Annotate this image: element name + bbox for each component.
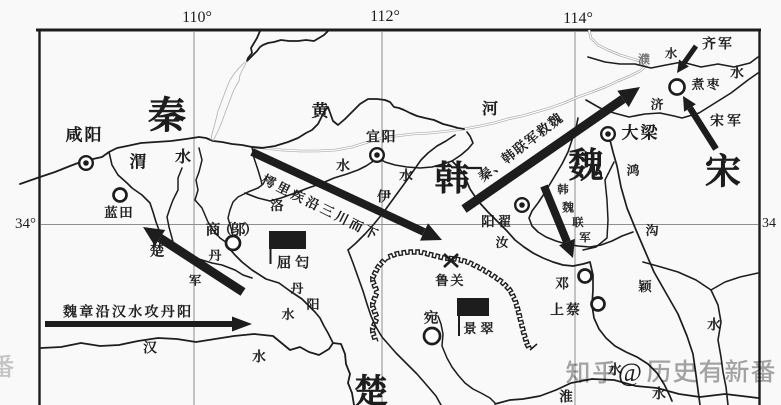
- svg-text:114°: 114°: [563, 10, 593, 27]
- svg-text:110°: 110°: [182, 9, 212, 26]
- svg-text:112°: 112°: [370, 8, 400, 25]
- svg-text:34°: 34°: [15, 216, 36, 232]
- svg-text:@: @: [618, 358, 642, 387]
- svg-text:34: 34: [762, 216, 776, 231]
